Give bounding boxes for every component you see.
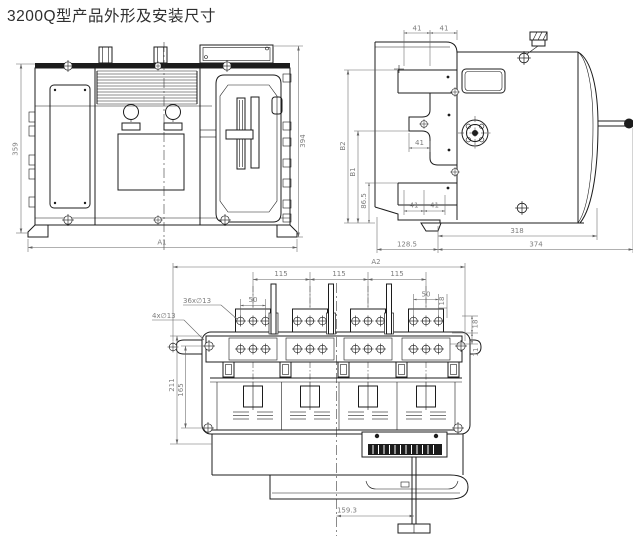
- front-mech-panel: [200, 75, 282, 222]
- side-shaft: [458, 116, 492, 150]
- dim-label-359: 359: [12, 142, 20, 155]
- side-view: 41 41 B2 B1 86.5 41: [339, 25, 633, 254]
- dim-label-18r: 18: [472, 320, 480, 329]
- front-lifting-tabs: [99, 47, 167, 63]
- dim-label-top41b: 41: [440, 25, 449, 33]
- dim-label-318: 318: [510, 227, 523, 235]
- dim-side-b2: B2: [339, 70, 398, 223]
- front-top-box: [200, 45, 273, 63]
- pole-terminal-1: [223, 286, 277, 419]
- dim-label-865: 86.5: [360, 193, 368, 209]
- drawing-page: 3200Q型产品外形及安装尺寸: [0, 0, 633, 538]
- dim-front-width: A1: [28, 239, 297, 253]
- dim-side-865: 86.5: [344, 183, 398, 223]
- dim-side-1285: 128.5: [377, 217, 438, 253]
- dim-label-115b: 115: [332, 270, 345, 278]
- dim-label-18t: 18: [438, 297, 446, 306]
- dim-label-b2: B2: [339, 141, 347, 150]
- dim-label-115c: 115: [390, 270, 403, 278]
- end-bracket-inner: [451, 365, 457, 375]
- dim-label-50r: 50: [422, 291, 431, 299]
- front-knob-left: [122, 105, 140, 131]
- top-view: A2 115 115 115 36x∅13 50: [152, 258, 481, 536]
- dim-label-11r: 11: [472, 348, 480, 357]
- dim-side-318: 318: [438, 208, 597, 240]
- dim-label-a1: A1: [157, 239, 166, 247]
- front-left-panel: [50, 85, 90, 208]
- dim-label-50l: 50: [249, 296, 258, 304]
- front-view: 359 394 A1: [12, 42, 308, 252]
- pole-terminal-3: [338, 286, 392, 419]
- dim-label-394: 394: [299, 134, 307, 148]
- handle-cross-bar: [226, 130, 253, 139]
- dim-label-top41a: 41: [413, 25, 422, 33]
- front-vent-grille: [97, 71, 197, 104]
- side-recess: [462, 69, 505, 93]
- dim-label-1285: 128.5: [397, 241, 417, 249]
- dim-side-mid41: 41: [409, 133, 430, 152]
- dim-label-b1: B1: [349, 167, 357, 176]
- connector-strip: [368, 444, 442, 455]
- dim-top-edge-18: 18: [452, 316, 480, 333]
- dim-label-mid41: 41: [415, 139, 424, 147]
- mounting-holes: [202, 340, 467, 434]
- lower-assembly: [212, 432, 468, 533]
- dim-label-115a: 115: [274, 270, 287, 278]
- dim-top-pole-pitches: 115 115 115: [253, 270, 426, 308]
- dim-label-bot41b: 41: [430, 202, 439, 210]
- dim-side-top-pitches: 41 41: [404, 25, 457, 67]
- callout-label-36x13: 36x∅13: [183, 297, 211, 305]
- callout-terminal-holes: 36x∅13: [183, 297, 237, 319]
- side-clamp: [527, 32, 547, 54]
- dim-label-374: 374: [529, 241, 543, 249]
- dim-label-165: 165: [177, 383, 185, 396]
- callout-label-4x13: 4x∅13: [152, 312, 176, 320]
- side-recess-inner: [465, 72, 502, 91]
- dim-label-a2: A2: [371, 258, 380, 266]
- dim-label-1593: 159.3: [337, 507, 357, 515]
- dim-side-b1: B1: [349, 131, 409, 223]
- dim-side-bottom-pitches: 41 41: [404, 190, 445, 215]
- dim-front-height-left: 359: [12, 64, 36, 233]
- drawing-canvas: 359 394 A1: [0, 0, 633, 538]
- side-drive-rod: [598, 119, 633, 129]
- side-terminal-shroud: [394, 65, 457, 205]
- dim-label-211: 211: [168, 378, 176, 391]
- front-knob-right: [164, 105, 182, 131]
- dim-side-374: 374: [438, 128, 633, 253]
- dim-top-1593: 159.3: [337, 507, 415, 517]
- shroud-step-tick: [394, 65, 404, 73]
- front-window: [118, 134, 184, 190]
- pole-terminal-2: [280, 286, 334, 419]
- dim-top-165: 165: [177, 346, 204, 428]
- dim-label-bot41a: 41: [410, 202, 419, 210]
